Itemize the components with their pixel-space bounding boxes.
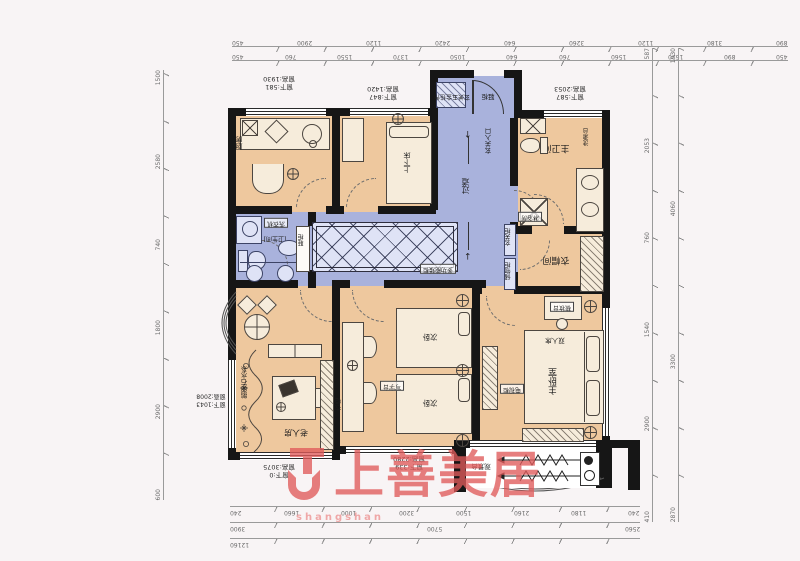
shoe-cabinet-2	[296, 226, 310, 272]
kitchen-basin	[252, 164, 284, 194]
window-note-kids: 窗下:847 窗高:1420	[352, 84, 414, 101]
dim-line-left	[163, 70, 170, 500]
vanity-basin-2	[277, 265, 294, 282]
wall	[332, 112, 340, 212]
bath-vent	[520, 118, 546, 134]
aisle-label: 过道	[462, 178, 470, 194]
counter-basin-2	[581, 202, 599, 217]
wall	[518, 226, 532, 234]
double-bed-label: 双人床	[540, 336, 570, 343]
desk-chair-1	[364, 336, 377, 358]
multi-cabinet-label: 多功能矮柜	[420, 264, 456, 274]
dim-line-right-2	[678, 48, 685, 522]
note-line: 窗高:2053	[538, 84, 602, 92]
pillow	[586, 336, 600, 372]
dim-number: 3260	[569, 39, 584, 46]
dim-number: 4060	[670, 201, 677, 216]
wall	[596, 440, 640, 448]
note-line: 窗高:2008	[186, 392, 236, 400]
bunk-bed-label: 上下床	[404, 152, 411, 173]
dim-number: 600	[155, 489, 162, 500]
watermark-pinyin: shangshan	[296, 512, 384, 523]
note-line: 窗下:581	[248, 82, 310, 90]
entry-shoe-label: 鞋柜	[476, 92, 500, 99]
dim-number: 3300	[670, 354, 677, 369]
dim-number: 2053	[644, 138, 651, 153]
watermark-logo	[286, 446, 332, 508]
hall-cabinet-label: 玄关柜	[506, 228, 512, 246]
aisle-arrow-down: ↓	[464, 250, 472, 259]
master-toilet-bowl	[520, 138, 540, 153]
dim-number: 2870	[670, 507, 677, 522]
note-line: 窗下:587	[538, 92, 602, 100]
wall	[228, 206, 292, 214]
pebble-stream-drawing	[234, 348, 268, 456]
watermark-brand: 上善美居	[334, 450, 542, 500]
tv-cabinet	[482, 346, 498, 410]
ceiling-lamp-icon	[456, 294, 469, 307]
dim-number: 3180	[707, 39, 722, 46]
tv-cabinet-label: 电视柜	[500, 384, 524, 394]
dim-number: 740	[155, 239, 162, 250]
dim-number: 1800	[155, 320, 162, 335]
elder-shelf	[268, 344, 322, 358]
wall	[628, 448, 640, 490]
dim-line-top-2	[232, 60, 788, 67]
washing-machine-drum	[242, 221, 258, 237]
dim-numbers-right-1: 587205376015402900410	[642, 48, 652, 522]
kitchen-hob	[242, 120, 258, 136]
foot-wardrobe	[522, 428, 584, 442]
dim-number: 890	[776, 39, 787, 46]
dim-numbers-left: 1500258074018002900600	[153, 70, 163, 500]
dim-line-bottom-2	[230, 522, 640, 529]
dim-numbers-right-2: 1930406033002870	[668, 48, 678, 522]
note-line: 窗下:1043	[186, 400, 236, 408]
vanity-basin-1	[246, 265, 263, 282]
pillow	[586, 380, 600, 416]
kids-wardrobe	[342, 118, 364, 162]
dim-number: 2900	[155, 404, 162, 419]
ceiling-lamp-icon	[584, 300, 597, 313]
desk-chair-2	[364, 382, 377, 404]
dim-number: 2900	[297, 39, 312, 46]
kitchen-label: 厨房	[236, 136, 243, 150]
pebble-stream-label: 鹅卵石水系	[242, 366, 249, 399]
dim-number: 760	[644, 232, 651, 243]
window-master-bath	[544, 110, 602, 118]
entry-column-label: 玄关入口	[486, 128, 493, 154]
wall	[332, 206, 344, 214]
wall	[378, 206, 436, 214]
window-note-master-bath: 窗下:587 窗高:2053	[538, 84, 602, 101]
utility-dial	[584, 470, 595, 481]
dim-number: 450	[232, 53, 243, 60]
dim-number: 1120	[638, 39, 653, 46]
dim-number: 1050	[450, 53, 465, 60]
window-note-kitchen: 窗下:581 窗高:1930	[248, 74, 310, 91]
ceiling-lamp-icon	[584, 426, 597, 439]
floorplan-canvas: 450290011202420640326011203180890 450760…	[0, 0, 800, 561]
window-kitchen	[246, 108, 326, 116]
cloak-closet	[580, 236, 604, 292]
note-line: 窗高:1420	[352, 84, 414, 92]
dresser-stool	[556, 318, 568, 330]
note-line: 窗下:847	[352, 92, 414, 100]
dim-number: 410	[644, 511, 651, 522]
dim-number: 640	[504, 39, 515, 46]
dim-number: 760	[285, 53, 296, 60]
wall	[384, 280, 486, 288]
aisle-line	[468, 136, 469, 164]
cloak-label: 衣帽间	[534, 254, 578, 264]
dim-number: 1560	[611, 53, 626, 60]
pillow	[458, 378, 470, 402]
bay-window-arcs-left	[202, 288, 236, 358]
dim-number: 1540	[644, 322, 651, 337]
kitchen-tap	[309, 140, 317, 148]
window-note-left: 窗下:1043 窗高:2008	[186, 392, 236, 408]
second-bed-2-label: 次卧	[416, 398, 444, 407]
dim-line-right-1	[652, 48, 659, 522]
dim-line-top-1	[232, 46, 788, 53]
shoe-cabinet-2-label: 鞋柜	[299, 234, 305, 246]
logo-hook	[288, 470, 320, 500]
dim-number: 1120	[366, 39, 381, 46]
master-toilet-tank	[540, 137, 548, 154]
storage-cabinet-label: 储物柜	[506, 262, 512, 280]
dim-number: 2420	[435, 39, 450, 46]
dim-number: 450	[232, 39, 243, 46]
dim-number: 640	[506, 53, 517, 60]
wall	[430, 70, 474, 78]
bed-headline	[584, 332, 585, 422]
desk-label: 写字台	[380, 381, 404, 391]
ceiling-lamp-icon	[287, 168, 299, 180]
dim-number: 2900	[644, 416, 651, 431]
dim-number: 1370	[393, 53, 408, 60]
elder-label: 老人房	[278, 428, 314, 437]
dim-number: 890	[724, 53, 735, 60]
wardrobe-label: 衣柜	[336, 398, 343, 411]
dim-numbers-top-1: 450290011202420640326011203180890	[232, 38, 788, 46]
desk-lamp-icon	[276, 402, 286, 412]
dim-numbers-top-2: 45076015501370105064076015601620890450	[232, 52, 788, 60]
ceiling-lamp-icon	[347, 360, 358, 371]
utility-knob	[584, 456, 593, 465]
dim-number: 2580	[155, 154, 162, 169]
wall	[308, 270, 316, 288]
ceiling-lamp-icon	[392, 113, 404, 125]
dim-number: 450	[776, 53, 787, 60]
note-line: 窗高:1930	[248, 74, 310, 82]
desk-strip	[342, 322, 364, 432]
dim-line-bottom-3	[230, 538, 640, 545]
second-bed-1-label: 次卧	[416, 332, 444, 341]
pillow	[389, 126, 429, 138]
shower-label: 淋浴房	[518, 212, 542, 222]
ceiling-lamp-icon	[456, 364, 469, 377]
dim-number: 760	[559, 53, 570, 60]
wash-table-label: 洗漱台	[584, 128, 590, 146]
entry-hooks-label: 玄关五金挂件	[430, 92, 474, 99]
master-label: 主卧室	[550, 368, 559, 395]
dim-number: 1500	[155, 70, 162, 85]
dim-number: 1550	[337, 53, 352, 60]
wall	[510, 118, 518, 186]
counter-basin-1	[581, 175, 599, 190]
corridor-platform-inner	[316, 226, 454, 268]
wall	[472, 286, 480, 448]
washer-label: 洗衣机	[264, 218, 288, 228]
pillow	[458, 312, 470, 336]
tea-table	[244, 314, 270, 340]
dresser-label: 梳妆台	[550, 302, 574, 312]
aisle-line	[468, 222, 469, 250]
window-kids	[350, 108, 428, 116]
wardrobe-strip	[320, 360, 334, 450]
